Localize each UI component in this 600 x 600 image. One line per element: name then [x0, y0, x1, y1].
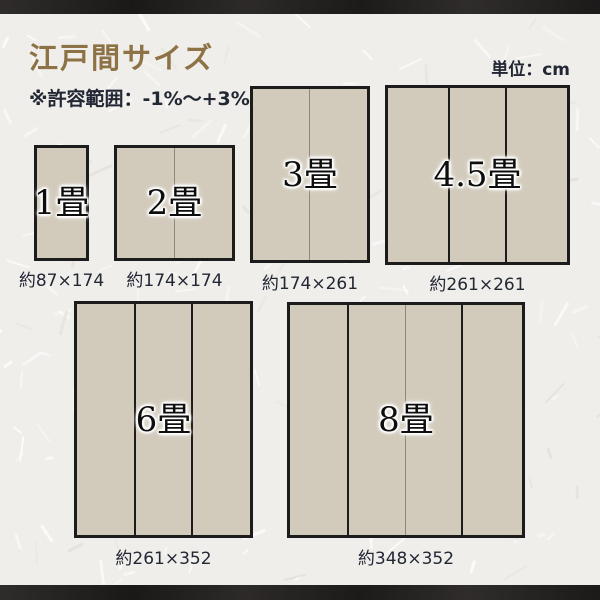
- tatami-45jo-label: 4.5畳: [433, 158, 521, 192]
- unit-label: 単位：cm: [491, 55, 570, 80]
- edoma-size-infographic: 江戸間サイズ ※許容範囲：-1%〜+3% 単位：cm 1畳 約87×174 2畳…: [0, 0, 600, 600]
- tatami-6jo-dimensions: 約261×352: [74, 544, 253, 569]
- tatami-6jo-label: 6畳: [136, 403, 192, 437]
- tatami-1jo-label: 1畳: [34, 186, 90, 220]
- tatami-2jo-label: 2畳: [147, 186, 203, 220]
- tolerance-note: ※許容範囲：-1%〜+3%: [29, 84, 250, 111]
- tatami-1jo: 1畳: [34, 145, 89, 261]
- tatami-8jo: 8畳: [287, 302, 525, 538]
- tatami-seam: [461, 305, 463, 535]
- tatami-seam: [347, 305, 349, 535]
- top-frame-bar: [0, 0, 600, 14]
- tatami-45jo: 4.5畳: [385, 85, 570, 265]
- tatami-2jo: 2畳: [114, 145, 235, 261]
- tatami-6jo: 6畳: [74, 301, 253, 538]
- tatami-8jo-dimensions: 約348×352: [287, 544, 525, 569]
- tatami-8jo-label: 8畳: [378, 403, 434, 437]
- bottom-frame-bar: [0, 585, 600, 600]
- page-title: 江戸間サイズ: [29, 43, 214, 73]
- tatami-3jo: 3畳: [250, 86, 370, 263]
- tatami-3jo-dimensions: 約174×261: [250, 269, 370, 294]
- tatami-2jo-dimensions: 約174×174: [114, 266, 235, 291]
- tatami-3jo-label: 3畳: [282, 158, 338, 192]
- tatami-1jo-dimensions: 約87×174: [14, 266, 109, 291]
- tatami-45jo-dimensions: 約261×261: [385, 270, 570, 295]
